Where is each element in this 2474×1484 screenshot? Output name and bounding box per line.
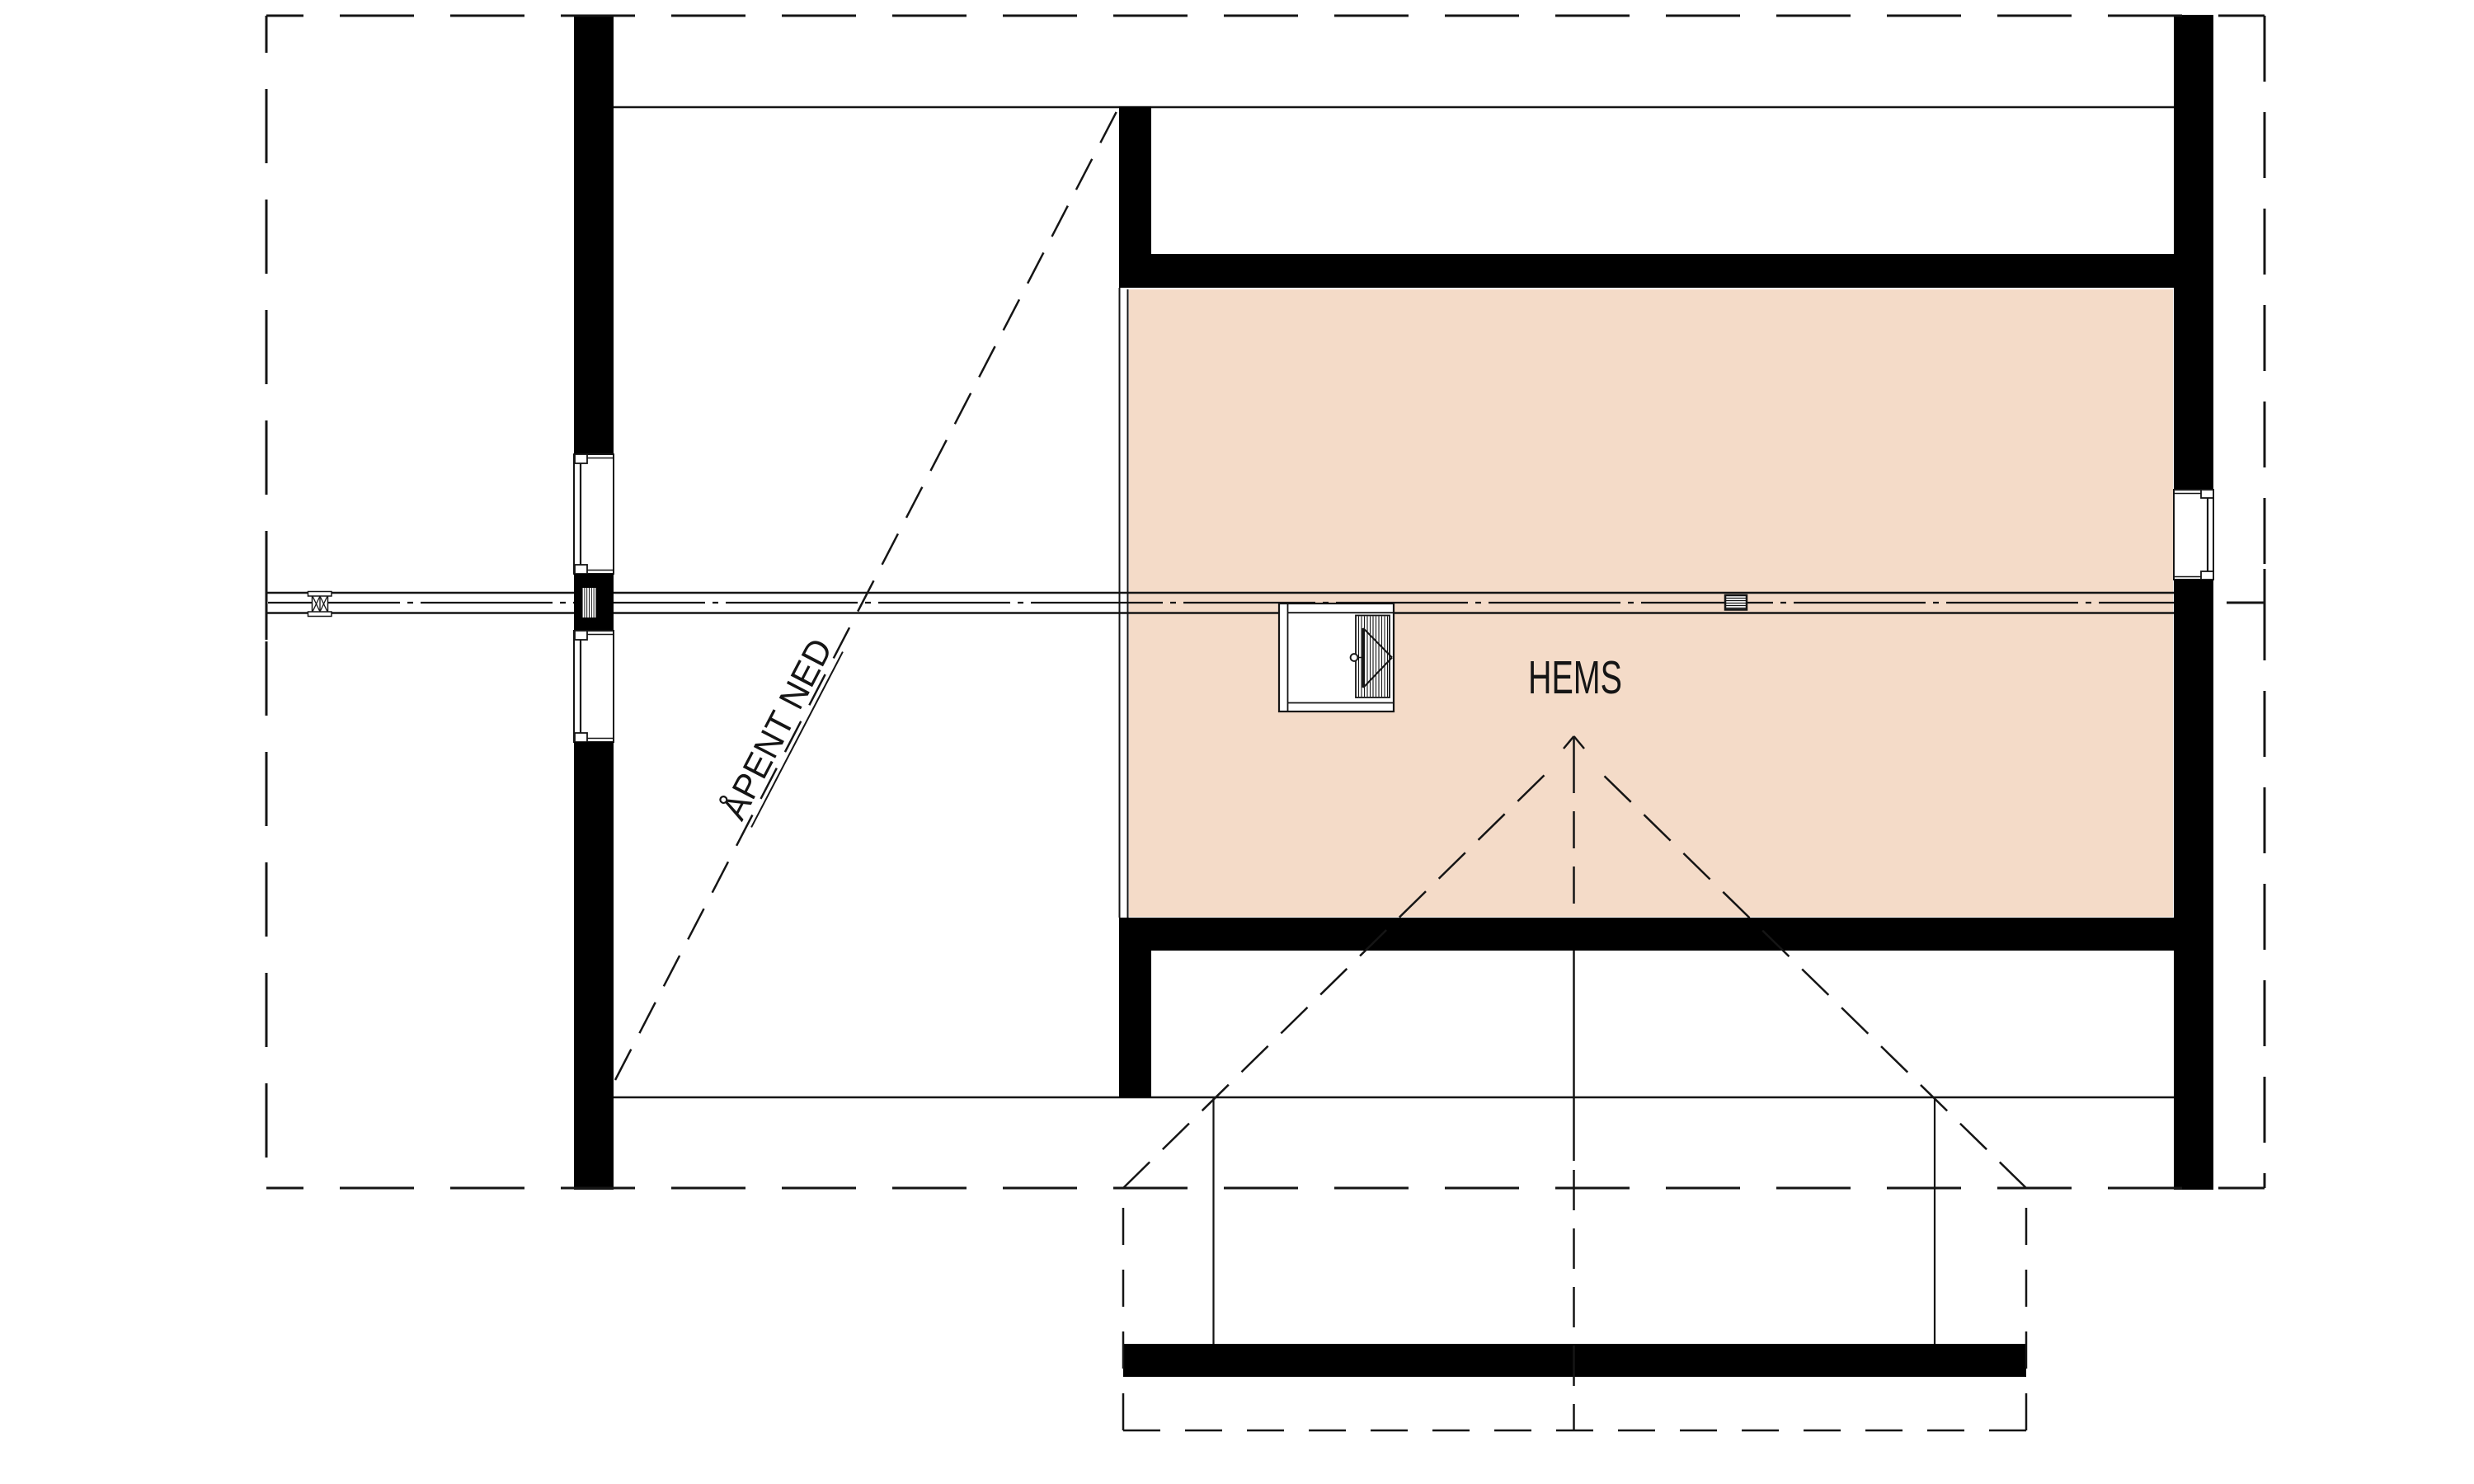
svg-text:HEMS: HEMS <box>1528 651 1622 704</box>
svg-text:ÅPENT NED: ÅPENT NED <box>714 632 840 826</box>
